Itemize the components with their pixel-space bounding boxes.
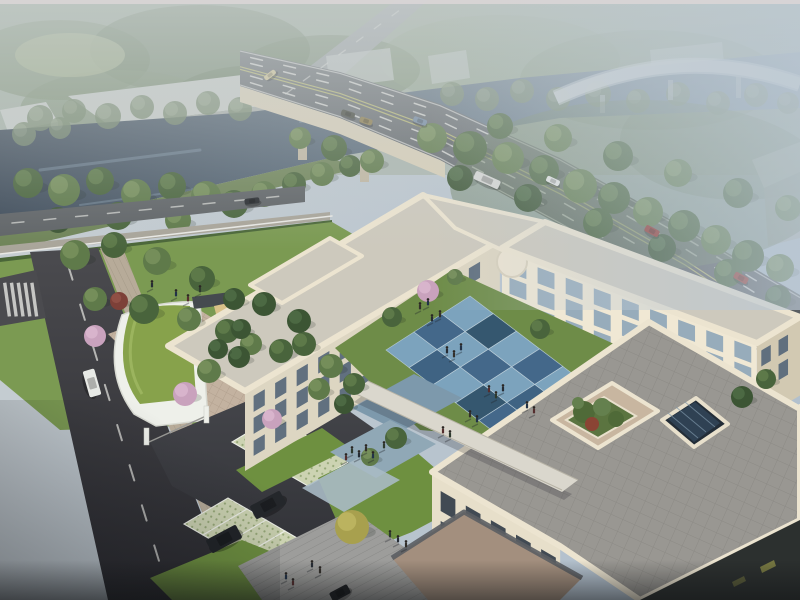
- top-border: [0, 0, 800, 4]
- architectural-rendering-canvas: [0, 0, 800, 600]
- aerial-rendering: [0, 0, 800, 600]
